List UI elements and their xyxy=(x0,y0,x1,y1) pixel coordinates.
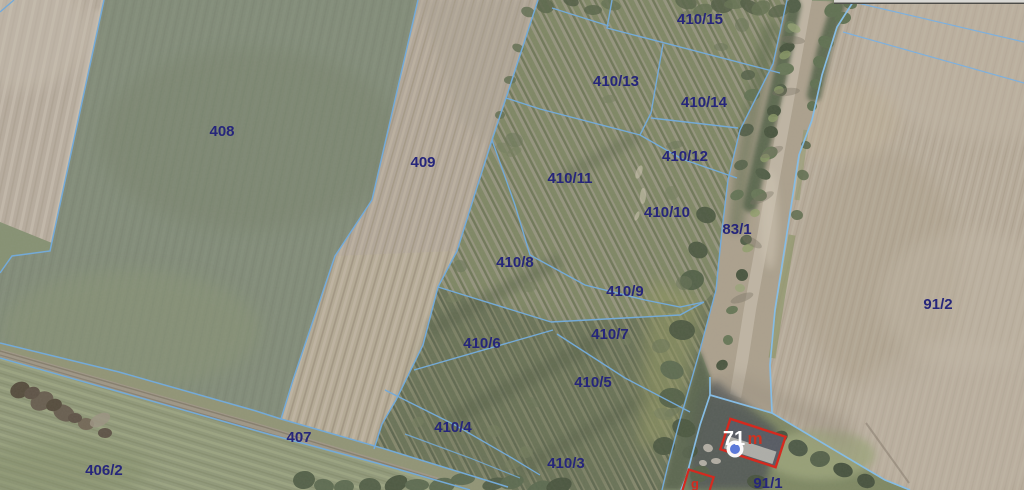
svg-text:410/14: 410/14 xyxy=(681,94,728,111)
svg-text:410/5: 410/5 xyxy=(574,374,612,391)
svg-text:410/6: 410/6 xyxy=(463,335,501,352)
svg-text:406/2: 406/2 xyxy=(85,462,123,479)
svg-text:71: 71 xyxy=(723,428,745,450)
svg-text:410/10: 410/10 xyxy=(644,204,690,221)
svg-text:91/1: 91/1 xyxy=(753,475,782,490)
svg-text:409: 409 xyxy=(410,154,435,171)
svg-text:410/7: 410/7 xyxy=(591,326,629,343)
svg-text:410/8: 410/8 xyxy=(496,254,534,271)
svg-text:410/4: 410/4 xyxy=(434,419,472,436)
svg-text:91/2: 91/2 xyxy=(923,296,952,313)
svg-text:m: m xyxy=(747,429,762,448)
svg-text:g: g xyxy=(691,476,699,490)
svg-text:83/1: 83/1 xyxy=(722,221,751,238)
svg-text:407: 407 xyxy=(286,429,311,446)
svg-text:410/15: 410/15 xyxy=(677,11,723,28)
svg-text:408: 408 xyxy=(209,123,234,140)
svg-text:410/9: 410/9 xyxy=(606,283,644,300)
svg-text:410/12: 410/12 xyxy=(662,148,708,165)
svg-text:410/11: 410/11 xyxy=(547,170,592,187)
svg-text:410/13: 410/13 xyxy=(593,73,639,90)
svg-text:410/3: 410/3 xyxy=(547,455,585,472)
